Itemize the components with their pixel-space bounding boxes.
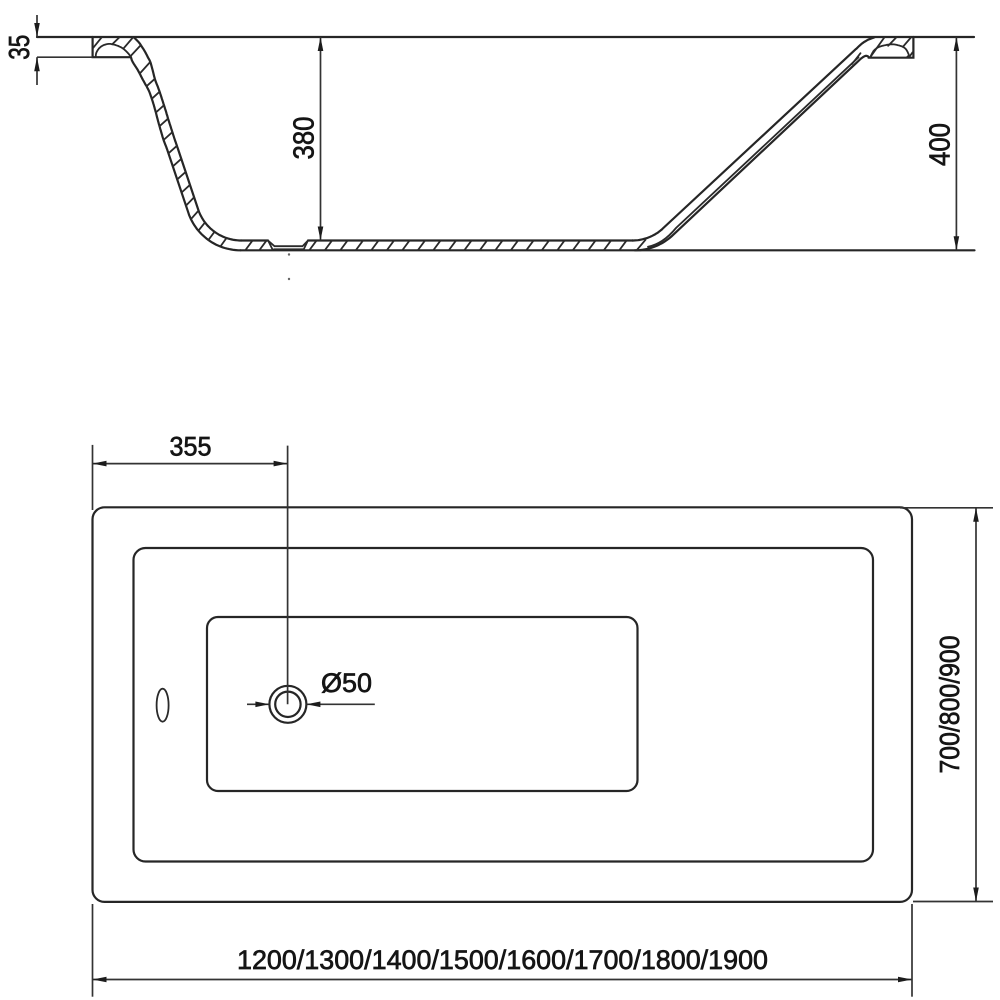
svg-text:700/800/900: 700/800/900	[934, 636, 965, 774]
svg-text:1200/1300/1400/1500/1600/1700/: 1200/1300/1400/1500/1600/1700/1800/1900	[237, 945, 768, 975]
svg-text:400: 400	[925, 123, 957, 166]
svg-text:Ø50: Ø50	[321, 668, 372, 698]
svg-text:35: 35	[4, 35, 36, 60]
svg-text:380: 380	[289, 117, 321, 160]
svg-text:355: 355	[170, 432, 212, 462]
